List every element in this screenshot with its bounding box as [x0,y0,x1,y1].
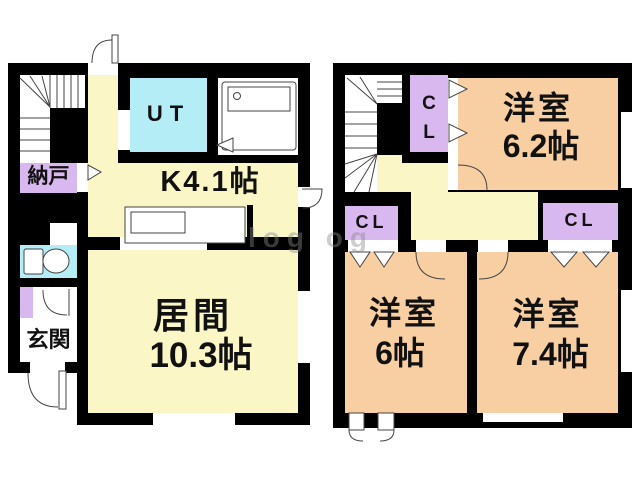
door-strip-storage [77,163,88,192]
bedroom3-label: 洋室 [477,298,618,332]
front-door-leaf [59,371,66,409]
window-bottom-floor1 [153,413,235,425]
top-door-leaf [112,35,118,63]
door-gap-front [30,362,65,373]
kitchen-label: K4.1帖 [118,167,303,197]
bedroom1-label: 洋室 [458,92,618,126]
room-toilet [20,245,77,278]
washstand-box [50,223,77,247]
shoe-cabinet [20,287,33,318]
hallway-floor2-a [402,163,448,192]
closet-top-label: C L [410,90,448,147]
stairs-floor1-core [50,108,85,163]
door-gap-utility [118,110,130,150]
bedroom2-size-label: 6帖 [345,337,455,371]
living-label: 居間 [88,297,298,335]
door-gap-top [88,63,118,75]
front-door-arc [28,373,58,407]
living-size-label: 10.3帖 [88,338,314,375]
floorplan-canvas: 納戸 UT K4.1帖 居間 10.3帖 玄関 C L 洋室 6.2帖 CL C… [0,0,640,480]
bedroom3-size-label: 7.4帖 [477,338,624,372]
hallway-floor1 [88,75,118,163]
bedroom2-label: 洋室 [345,297,463,331]
watermark-text: log og [248,222,488,254]
counter-pass-gap [120,237,207,250]
room-bedroom2 [345,252,467,413]
room-bathroom [218,78,298,155]
bedroom1-size-label: 6.2帖 [458,130,624,164]
closet-right-gap [548,240,612,252]
closet-right-label: CL [543,211,618,230]
top-door-arc [92,40,112,63]
balcony-door-arc1 [349,430,363,441]
balcony-door-arc2 [380,430,394,441]
window-bottom-floor2 [483,413,563,422]
stairs-floor2-left [345,75,377,192]
stairs-floor2-top [377,75,402,103]
stairs-landing [377,155,402,192]
door-cell-entrance-hall [33,287,77,318]
room-bedroom3 [477,252,618,413]
entrance-label: 玄関 [20,328,77,351]
utility-label: UT [130,102,207,125]
closet-top-door-strip [448,78,458,190]
storage-label: 納戸 [20,166,77,188]
